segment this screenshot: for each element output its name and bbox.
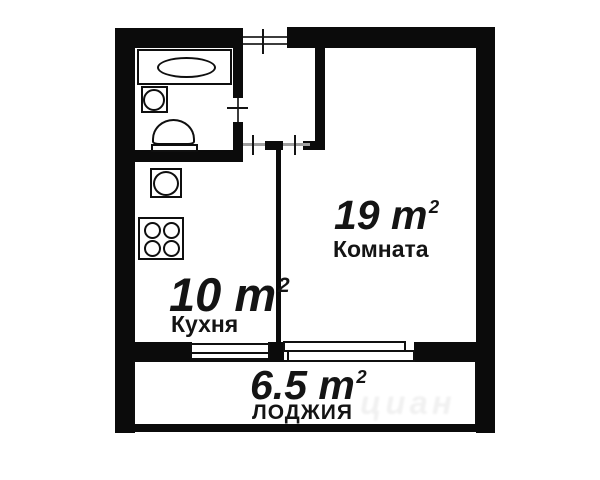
wall-bottom-left bbox=[115, 342, 192, 362]
living-room-area-label: 19 m2 bbox=[334, 195, 438, 236]
hall-wall-right bbox=[315, 48, 325, 143]
bathtub-icon bbox=[137, 49, 232, 85]
floor-plan: 19 m2 Комната 10 m2 Кухня 6.5 m2 ЛОДЖИЯ … bbox=[0, 0, 600, 480]
loggia-wall-bottom bbox=[115, 424, 495, 432]
wall-left bbox=[115, 28, 135, 433]
stove-icon bbox=[138, 217, 184, 260]
kitchen-name-label: Кухня bbox=[171, 313, 238, 336]
hall-wall-middle-segment bbox=[265, 141, 283, 150]
living-room-name-label: Комната bbox=[333, 238, 429, 261]
kitchen-window bbox=[190, 343, 270, 360]
wall-top-right bbox=[287, 27, 495, 48]
wall-bottom-right bbox=[414, 342, 476, 362]
kitchen-sink-icon bbox=[150, 168, 182, 198]
bathroom-wall-right-upper bbox=[233, 48, 243, 98]
watermark: циан bbox=[360, 384, 456, 422]
wall-right bbox=[476, 27, 495, 433]
washbasin-icon bbox=[141, 86, 168, 113]
wall-bottom-middle bbox=[268, 342, 284, 362]
wall-top-left bbox=[115, 28, 243, 48]
loggia-name-label: ЛОДЖИЯ bbox=[252, 402, 353, 423]
loggia-area-label: 6.5 m2 bbox=[250, 365, 365, 406]
